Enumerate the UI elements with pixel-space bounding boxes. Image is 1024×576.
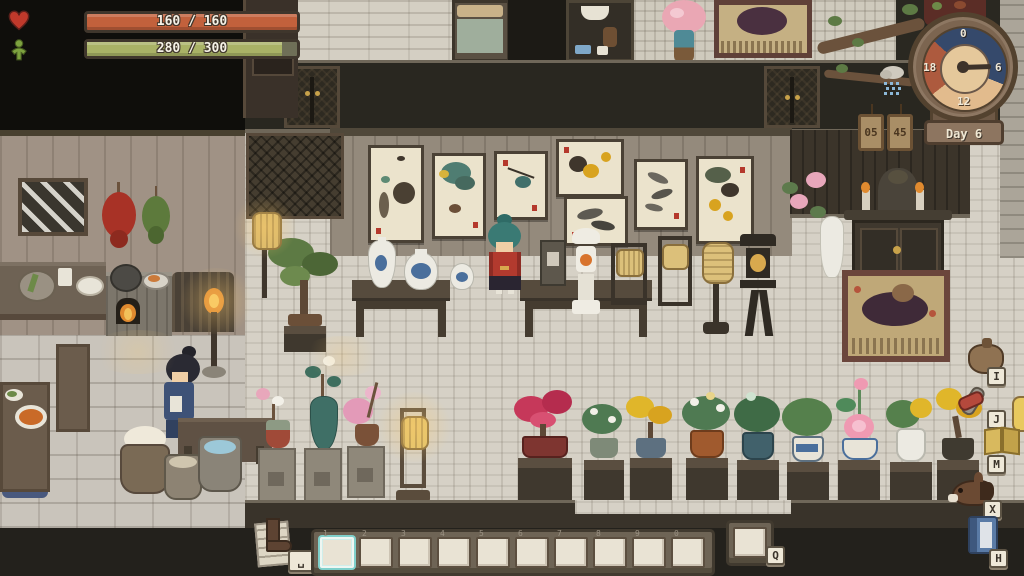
map-book-icon [984,427,1002,456]
painting-shrimp[interactable] [634,159,688,230]
pot-orchid[interactable] [680,390,734,508]
hotbar: 1 2 3 4 5 6 7 8 9 0 [311,529,715,576]
pot-pink-blossom[interactable] [341,380,391,508]
hotbar-slot-9[interactable]: 9 [632,537,666,568]
painting-bird-rock[interactable] [368,145,424,243]
stone-display-stand[interactable] [540,240,566,286]
pot-white-planter[interactable] [884,398,936,508]
time-plaque-minute: 45 [887,114,913,151]
pot-fern[interactable] [780,396,834,508]
lantern-stand-a [607,243,651,311]
inventory-button[interactable]: I [966,338,1010,388]
kitchen-counter [0,262,106,314]
herb-bunch [142,186,170,248]
dining-table [0,382,50,492]
map-button[interactable]: M [982,424,1024,476]
stamina-figure-icon [8,38,30,62]
handbook-key: H [989,549,1008,568]
game-viewport: 160 / 160 280 / 300 0 6 12 18 Day 6 05 [0,0,1024,576]
time-hour: 05 [864,126,877,139]
peony-vase [780,172,846,282]
stamina-value: 280 / 300 [87,42,297,56]
door-right[interactable] [764,66,820,128]
walk-toggle-button[interactable]: ␣ [252,514,318,576]
blossom-vase-upper [662,0,706,64]
floor-lamp [698,240,734,336]
hotbar-slot-3[interactable]: 3 [398,537,432,568]
altar[interactable] [844,166,952,286]
display-table-left [352,280,450,340]
painting-gourds[interactable] [556,139,624,197]
player-character [486,214,526,294]
health-icon-wrap [7,9,31,33]
health-value: 160 / 160 [87,14,297,30]
hotbar-slot-8[interactable]: 8 [593,537,627,568]
pot-grass-orchid[interactable] [732,392,784,508]
quick-slot-key: Q [766,546,785,565]
clock-tick-6: 6 [995,61,1002,74]
pot-red-azalea[interactable] [512,390,576,508]
handbook-button[interactable]: H [966,512,1010,570]
kitchen-shelf [566,0,634,62]
void-gap [508,0,566,66]
hotbar-slot-6[interactable]: 6 [515,537,549,568]
painting-pine-loquat[interactable] [696,156,754,244]
pot-plum-blossom[interactable] [252,386,300,508]
pot-white-flower-bonsai[interactable] [580,402,628,508]
clock-tick-18: 18 [923,61,936,74]
stamina-bar: 280 / 300 [84,39,300,59]
weather-snow-cloud-icon [880,64,906,96]
water-basket[interactable] [198,428,242,498]
bed [452,0,510,62]
time-minute: 45 [893,126,906,139]
kitchen-window [18,178,88,236]
branch-leaves-2 [852,38,864,47]
hotbar-slot-1[interactable]: 1 [320,537,354,568]
rice-basket[interactable] [120,426,170,500]
day-plaque: Day 6 [924,120,1004,145]
clock: 0 6 12 18 [908,12,1018,122]
hotbar-slot-2[interactable]: 2 [359,537,393,568]
empty-basket[interactable] [164,446,202,504]
pot-yellow-bonsai[interactable] [626,394,676,508]
health-bar: 160 / 160 [84,11,300,33]
hotbar-slot-5[interactable]: 5 [476,537,510,568]
dragon-rug [842,270,950,362]
heart-icon [7,9,31,33]
side-bench [56,344,90,432]
day-label: Day 6 [946,127,982,141]
porcelain-lantern[interactable] [568,228,604,316]
chili-bunch [100,182,138,252]
branch-leaves-3 [836,64,848,73]
clock-hub [957,61,969,73]
pot-lotus[interactable] [830,378,888,508]
hotbar-slot-0[interactable]: 0 [671,537,705,568]
wooden-pagoda-lantern [738,234,778,338]
branch-leaves-4 [902,4,918,15]
clock-tick-0: 0 [960,27,967,40]
branch-leaves-1 [828,16,842,26]
lantern-stand-b [654,236,696,312]
time-plaque-hour: 05 [858,114,884,151]
vase-small-blue-white[interactable] [450,263,474,290]
corner-lamp [250,212,280,308]
hotbar-slot-4[interactable]: 4 [437,537,471,568]
stove[interactable] [106,272,172,336]
south-doorway-floor [575,500,791,514]
floor-lantern-stand [394,408,432,504]
vase-round-blue-white[interactable] [404,252,438,290]
hotbar-slot-7[interactable]: 7 [554,537,588,568]
stamina-icon-wrap [8,38,30,62]
wall-rug-upper [714,0,812,58]
painting-wisteria[interactable] [432,153,486,239]
lattice-screen-left [246,133,344,219]
clock-tick-12: 12 [957,95,970,108]
painting-bird-branch[interactable] [494,151,548,220]
